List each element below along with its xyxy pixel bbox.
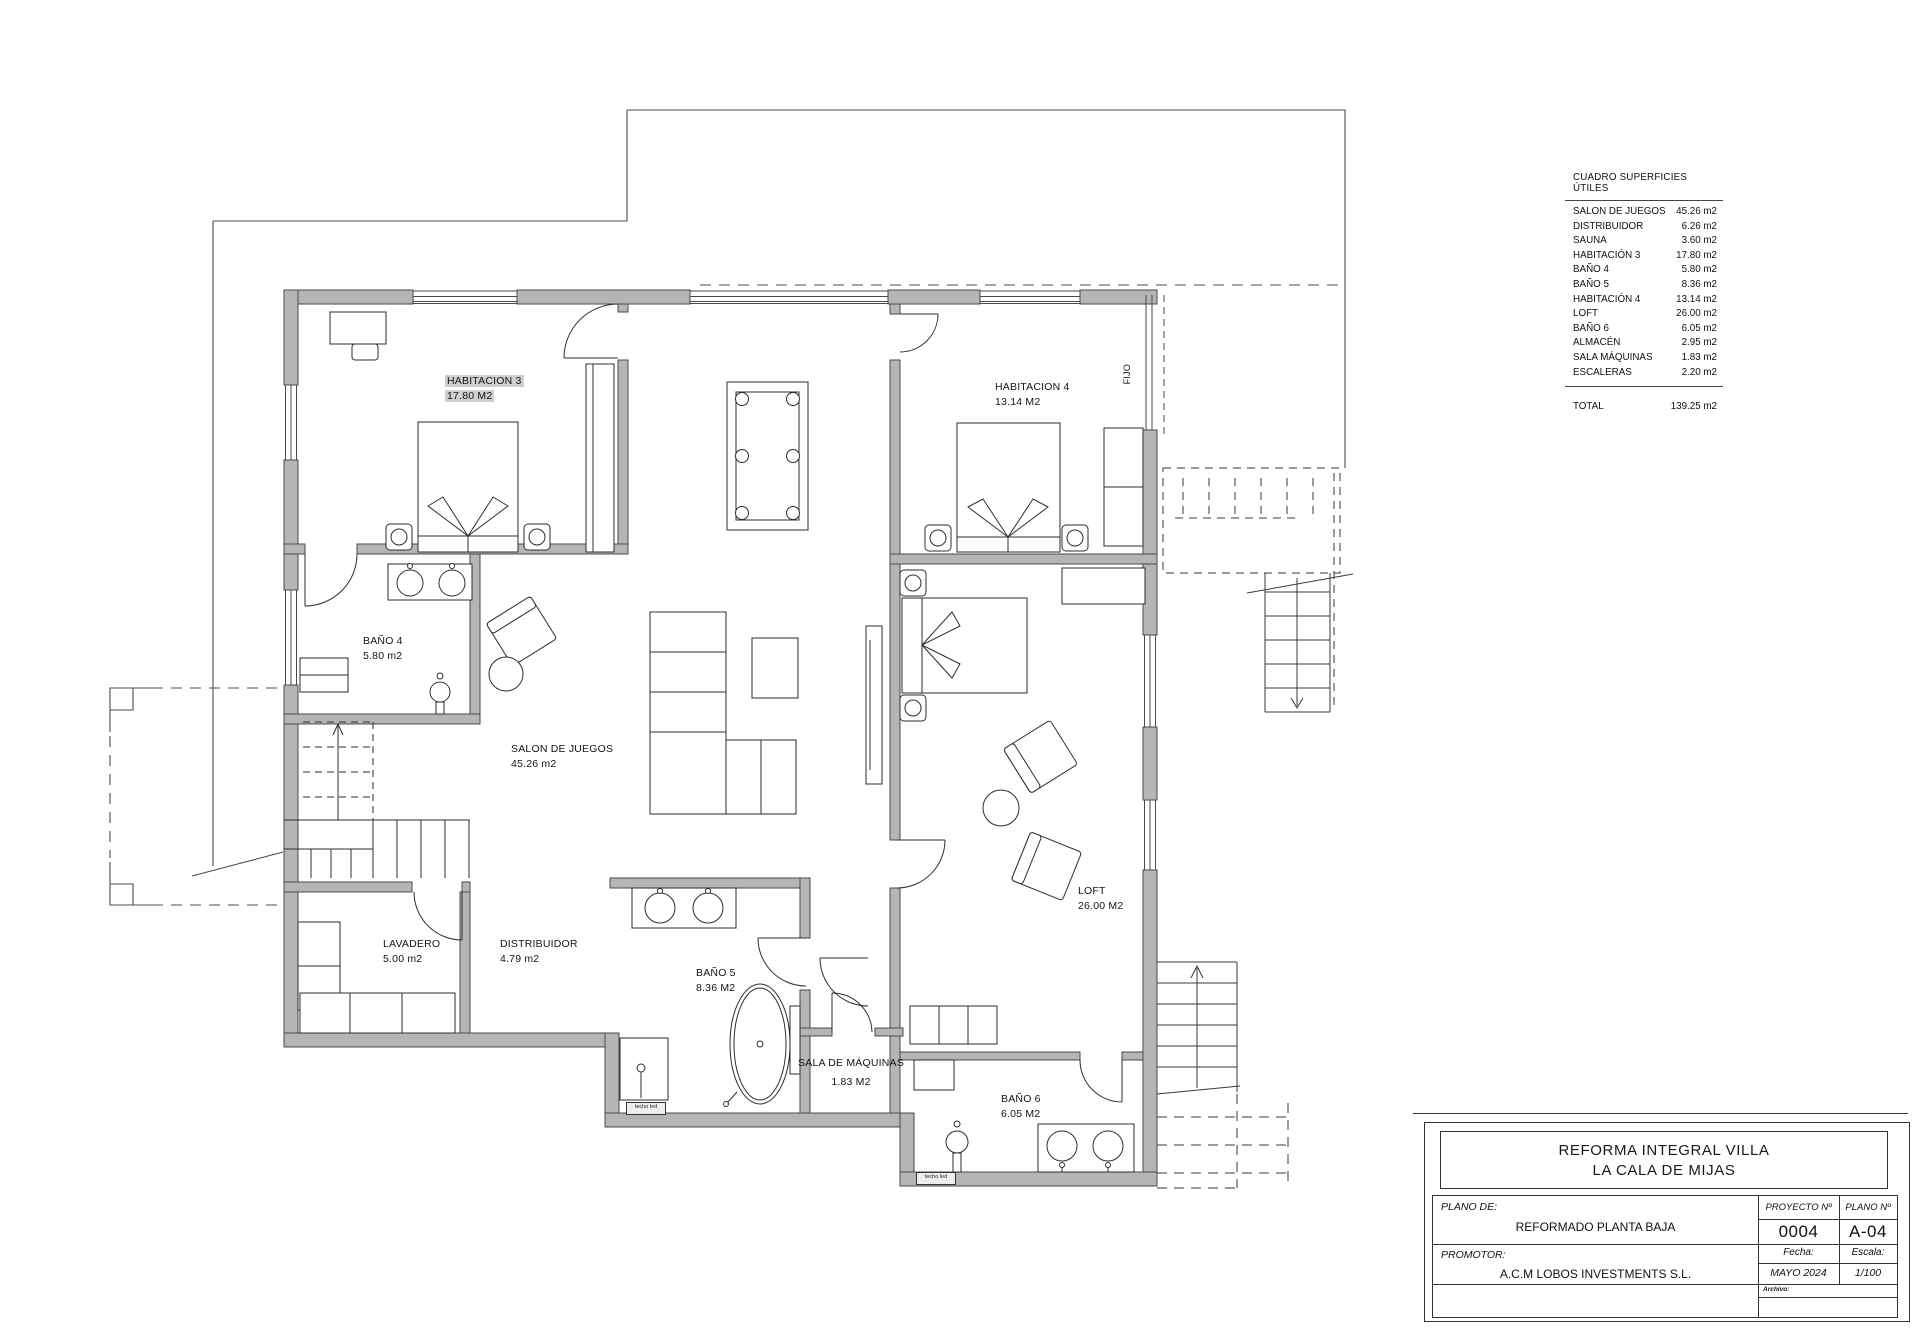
floorplan-sheet: { "plan": { "rooms": { "habitacion3": {"…	[0, 0, 1920, 1336]
room-label-distribuidor: DISTRIBUIDOR 4.79 m2	[500, 937, 578, 967]
table-row: LOFT26.00 m2	[1573, 307, 1717, 322]
project-title-line1: REFORMA INTEGRAL VILLA	[1441, 1141, 1887, 1161]
proyecto-label: PROYECTO Nº	[1758, 1202, 1839, 1213]
room-label-lavadero: LAVADERO 5.00 m2	[383, 937, 440, 967]
surface-table-rows: SALON DE JUEGOS45.26 m2 DISTRIBUIDOR6.26…	[1565, 201, 1723, 386]
room-label-loft: LOFT 26.00 M2	[1078, 884, 1123, 914]
title-block-project-title: REFORMA INTEGRAL VILLA LA CALA DE MIJAS	[1440, 1131, 1888, 1189]
grid-divider	[1758, 1219, 1897, 1220]
project-title-line2: LA CALA DE MIJAS	[1441, 1161, 1887, 1181]
table-row: HABITACIÓN 413.14 m2	[1573, 293, 1717, 308]
plano-num-value: A-04	[1839, 1222, 1897, 1242]
room-area: 4.79 m2	[500, 953, 539, 965]
table-row: SAUNA3.60 m2	[1573, 234, 1717, 249]
furniture-bano6	[946, 1121, 1134, 1172]
title-block-grid: PLANO DE: REFORMADO PLANTA BAJA PROMOTOR…	[1432, 1195, 1898, 1318]
total-label: TOTAL	[1573, 399, 1604, 415]
table-row: DISTRIBUIDOR6.26 m2	[1573, 220, 1717, 235]
interior-stairs	[284, 722, 470, 878]
room-area: 45.26 m2	[511, 758, 556, 770]
room-label-salon: SALON DE JUEGOS 45.26 m2	[511, 742, 613, 772]
fecha-value: MAYO 2024	[1758, 1267, 1839, 1279]
room-area: 13.14 M2	[995, 396, 1040, 408]
fecha-label: Fecha:	[1758, 1247, 1839, 1258]
room-label-habitacion3: HABITACION 3 17.80 M2	[445, 374, 524, 404]
room-name: BAÑO 5	[696, 967, 736, 979]
room-name: BAÑO 4	[363, 635, 403, 647]
room-label-bano6: BAÑO 6 6.05 M2	[1001, 1092, 1041, 1122]
archivo-label: Archivo:	[1763, 1286, 1789, 1293]
room-label-bano5: BAÑO 5 8.36 M2	[696, 966, 736, 996]
grid-divider	[1758, 1297, 1897, 1298]
room-area: 1.83 M2	[831, 1075, 870, 1090]
room-area: 8.36 M2	[696, 982, 735, 994]
proyecto-value: 0004	[1758, 1222, 1839, 1242]
total-value: 139.25 m2	[1671, 399, 1717, 415]
exterior-stair-top-right	[1163, 468, 1353, 712]
room-label-sala-maquinas: SALA DE MÁQUINAS 1.83 M2	[796, 1056, 906, 1090]
room-name: BAÑO 6	[1001, 1093, 1041, 1105]
room-area: 26.00 M2	[1078, 900, 1123, 912]
furniture-habitacion3	[330, 312, 614, 552]
fijo-annotation: FIJO	[1120, 364, 1135, 384]
table-row: BAÑO 58.36 m2	[1573, 278, 1717, 293]
table-row: HABITACIÓN 317.80 m2	[1573, 249, 1717, 264]
plano-de-label: PLANO DE:	[1441, 1201, 1497, 1213]
grid-divider	[1433, 1284, 1897, 1285]
room-label-habitacion4: HABITACION 4 13.14 M2	[995, 380, 1070, 410]
room-name: DISTRIBUIDOR	[500, 938, 578, 950]
plano-de-value: REFORMADO PLANTA BAJA	[1433, 1220, 1758, 1234]
room-area: 5.00 m2	[383, 953, 422, 965]
furniture-bano5	[620, 888, 800, 1107]
room-area: 5.80 m2	[363, 650, 402, 662]
room-area: 6.05 M2	[1001, 1108, 1040, 1120]
surface-table: CUADRO SUPERFICIES ÚTILES SALON DE JUEGO…	[1565, 172, 1723, 415]
room-name: HABITACION 3	[445, 375, 524, 387]
escala-label: Escala:	[1839, 1247, 1897, 1258]
table-row: BAÑO 66.05 m2	[1573, 322, 1717, 337]
table-row: BAÑO 45.80 m2	[1573, 263, 1717, 278]
room-name: SALA DE MÁQUINAS	[798, 1057, 904, 1069]
techo-led-annotation-2: techo led	[916, 1172, 956, 1185]
table-row: ESCALERAS2.20 m2	[1573, 366, 1717, 381]
techo-led-annotation-1: techo led	[626, 1102, 666, 1115]
furniture-loft	[900, 568, 1145, 1090]
room-label-bano4: BAÑO 4 5.80 m2	[363, 634, 403, 664]
exterior-stair-bottom-right	[1157, 962, 1288, 1188]
table-row: ALMACÉN2.95 m2	[1573, 336, 1717, 351]
promotor-label: PROMOTOR:	[1441, 1249, 1506, 1261]
room-name: SALON DE JUEGOS	[511, 743, 613, 755]
promotor-value: A.C.M LOBOS INVESTMENTS S.L.	[1433, 1267, 1758, 1281]
room-area: 17.80 M2	[445, 390, 494, 402]
table-row: SALON DE JUEGOS45.26 m2	[1573, 205, 1717, 220]
room-name: LOFT	[1078, 885, 1106, 897]
surface-table-total-row: TOTAL 139.25 m2	[1565, 387, 1723, 415]
grid-divider	[1433, 1244, 1897, 1245]
furniture-habitacion4	[925, 423, 1143, 552]
room-name: HABITACION 4	[995, 381, 1070, 393]
surface-table-title: CUADRO SUPERFICIES ÚTILES	[1565, 172, 1723, 200]
sheet-edge-line	[1413, 1113, 1908, 1114]
escala-value: 1/100	[1839, 1267, 1897, 1279]
room-name: LAVADERO	[383, 938, 440, 950]
plano-num-label: PLANO Nº	[1839, 1202, 1897, 1213]
table-row: SALA MÁQUINAS1.83 m2	[1573, 351, 1717, 366]
grid-divider	[1758, 1263, 1897, 1264]
